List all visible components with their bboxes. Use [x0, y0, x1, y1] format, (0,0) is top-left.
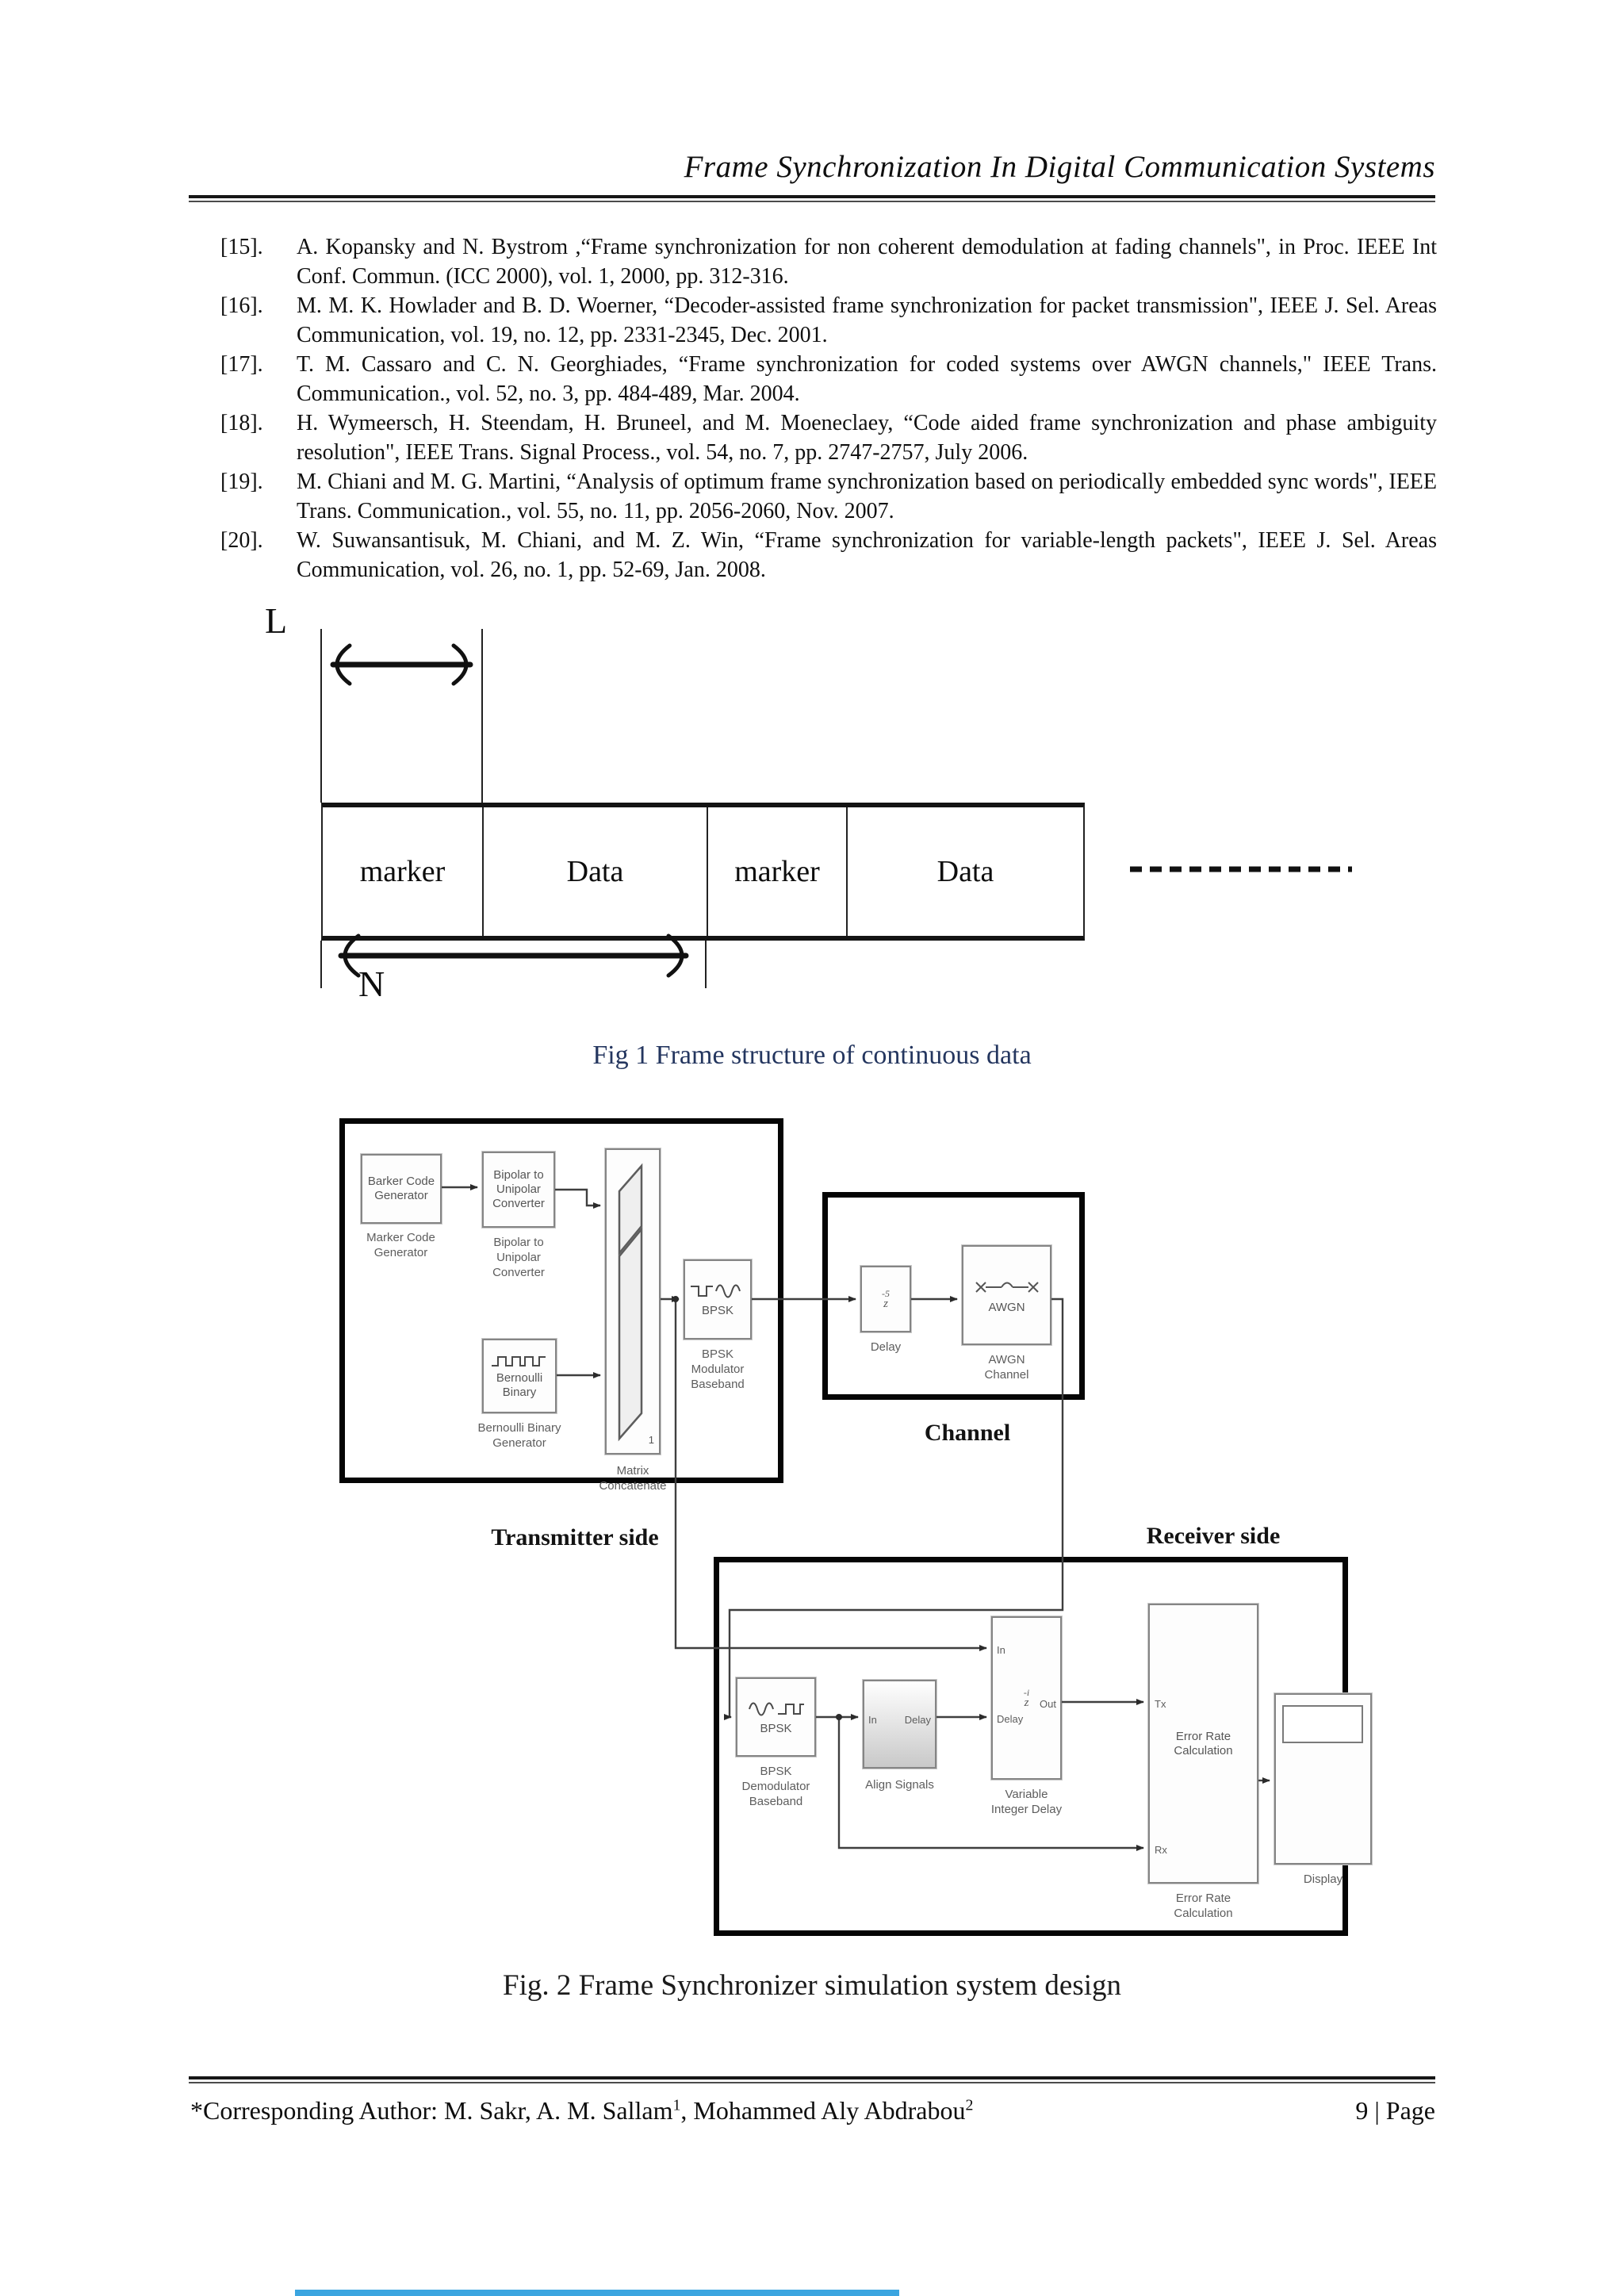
fig1-length-N-label: N: [358, 963, 385, 1005]
fig1-L-arrow: [333, 646, 470, 684]
align-signals-block: In Delay: [863, 1680, 936, 1769]
awgn-channel-label: AWGN Channel: [969, 1353, 1044, 1383]
fig1-length-L-label: L: [265, 600, 287, 642]
bpsk-modulator-text: BPSK: [702, 1304, 733, 1318]
fig1-cell-data: Data: [846, 807, 1083, 936]
sine-square-waveform-icon: [746, 1699, 806, 1719]
fig1-cell-marker: marker: [323, 807, 482, 936]
variable-delay-in-port: In: [997, 1645, 1005, 1655]
delay-base: z: [883, 1298, 888, 1310]
align-signals-label: Align Signals: [850, 1778, 949, 1793]
square-sine-waveform-icon: [688, 1281, 748, 1301]
header-rule-thick: [189, 195, 1435, 198]
page-number: 9 | Page: [1213, 2096, 1435, 2125]
variable-delay-base: z: [1025, 1697, 1029, 1709]
fig1-cell-data: Data: [482, 807, 707, 936]
reference-text: A. Kopansky and N. Bystrom ,“Frame synch…: [297, 232, 1437, 291]
reference-item: [15]. A. Kopansky and N. Bystrom ,“Frame…: [220, 232, 1437, 291]
fig1-cell-marker: marker: [707, 807, 846, 936]
barker-code-generator-block: Barker Code Generator: [361, 1154, 442, 1224]
reference-number: [18].: [220, 408, 297, 467]
reference-text: M. M. K. Howlader and B. D. Woerner, “De…: [297, 291, 1437, 350]
author-superscript-2: 2: [965, 2096, 973, 2114]
awgn-channel-icon: [971, 1276, 1043, 1298]
reference-item: [19]. M. Chiani and M. G. Martini, “Anal…: [220, 467, 1437, 526]
channel-section-label: Channel: [904, 1420, 1031, 1447]
receiver-side-label: Receiver side: [1102, 1523, 1324, 1550]
barker-code-generator-label: Marker Code Generator: [339, 1231, 462, 1261]
error-rate-calculation-text: Error Rate Calculation: [1174, 1730, 1232, 1758]
header-rule-thin: [189, 201, 1435, 202]
matrix-concatenate-block: 1: [605, 1148, 661, 1455]
bpsk-demodulator-label: BPSK Demodulator Baseband: [734, 1765, 818, 1809]
delay-label: Delay: [854, 1340, 917, 1355]
bernoulli-binary-block: Bernoulli Binary: [482, 1339, 557, 1413]
matrix-concatenate-label: Matrix Concatenate: [573, 1464, 693, 1494]
bipolar-to-unipolar-text: Bipolar to Unipolar Converter: [492, 1168, 545, 1211]
reference-text: W. Suwansantisuk, M. Chiani, and M. Z. W…: [297, 526, 1437, 585]
bpsk-modulator-label: BPSK Modulator Baseband: [680, 1347, 755, 1392]
error-rate-calculation-block: Tx Error Rate Calculation Rx: [1148, 1604, 1258, 1884]
fig1-caption: Fig 1 Frame structure of continuous data: [0, 1041, 1624, 1071]
z-variable-delay-icon: -i z: [1024, 1688, 1029, 1709]
error-rate-tx-port: Tx: [1155, 1699, 1166, 1709]
align-signals-delay-port: Delay: [905, 1715, 931, 1725]
z-delay-icon: -5 z: [882, 1289, 890, 1310]
fig1-frame-table: marker Data marker Data: [321, 803, 1085, 941]
matrix-concatenate-icon: [608, 1155, 657, 1448]
bpsk-demodulator-text: BPSK: [760, 1722, 791, 1736]
delay-block: -5 z: [860, 1266, 911, 1332]
display-label: Display: [1286, 1872, 1360, 1888]
corresponding-author-mid: , Mohammed Aly Abdrabou: [680, 2096, 965, 2125]
footer-rule-thin: [189, 2082, 1435, 2083]
bipolar-to-unipolar-block: Bipolar to Unipolar Converter: [482, 1152, 555, 1228]
transmitter-side-label: Transmitter side: [456, 1524, 694, 1551]
delay-exponent: -5: [882, 1289, 890, 1298]
display-block: [1274, 1693, 1372, 1865]
awgn-text: AWGN: [988, 1301, 1025, 1315]
reference-number: [17].: [220, 350, 297, 408]
reference-text: H. Wymeersch, H. Steendam, H. Bruneel, a…: [297, 408, 1437, 467]
reference-number: [16].: [220, 291, 297, 350]
bpsk-modulator-block: BPSK: [684, 1259, 752, 1340]
reference-number: [15].: [220, 232, 297, 291]
reference-item: [18]. H. Wymeersch, H. Steendam, H. Brun…: [220, 408, 1437, 467]
fig1-N-arrow: [341, 936, 686, 976]
awgn-block: AWGN: [962, 1245, 1051, 1345]
page-header-title: Frame Synchronization In Digital Communi…: [189, 149, 1435, 185]
footer-rule-thick: [189, 2076, 1435, 2079]
variable-delay-exponent: -i: [1024, 1688, 1029, 1697]
fig2-caption: Fig. 2 Frame Synchronizer simulation sys…: [0, 1968, 1624, 2003]
reference-text: M. Chiani and M. G. Martini, “Analysis o…: [297, 467, 1437, 526]
corresponding-author-line: *Corresponding Author: M. Sakr, A. M. Sa…: [190, 2096, 1189, 2125]
reference-text: T. M. Cassaro and C. N. Georghiades, “Fr…: [297, 350, 1437, 408]
bottom-blue-bar: [295, 2290, 899, 2296]
bernoulli-binary-text: Bernoulli Binary: [496, 1371, 542, 1400]
paper-page: { "header": { "title": "Frame Synchroniz…: [0, 0, 1624, 2296]
bernoulli-binary-label: Bernoulli Binary Generator: [446, 1421, 593, 1451]
reference-number: [20].: [220, 526, 297, 585]
bipolar-to-unipolar-label: Bipolar to Unipolar Converter: [458, 1236, 579, 1280]
barker-code-generator-text: Barker Code Generator: [368, 1175, 435, 1203]
variable-integer-delay-label: Variable Integer Delay: [975, 1788, 1078, 1818]
error-rate-rx-port: Rx: [1155, 1845, 1167, 1855]
author-superscript-1: 1: [672, 2096, 680, 2114]
align-signals-in-port: In: [868, 1715, 877, 1725]
references-list: [15]. A. Kopansky and N. Bystrom ,“Frame…: [220, 232, 1437, 585]
pulse-waveform-icon: [490, 1353, 549, 1369]
reference-number: [19].: [220, 467, 297, 526]
variable-delay-delay-port: Delay: [997, 1714, 1023, 1724]
reference-item: [17]. T. M. Cassaro and C. N. Georghiade…: [220, 350, 1437, 408]
variable-delay-out-port: Out: [1040, 1699, 1056, 1709]
error-rate-calculation-label: Error Rate Calculation: [1150, 1892, 1257, 1922]
matrix-port-number: 1: [649, 1434, 654, 1447]
variable-integer-delay-block: In -i z Out Delay: [991, 1616, 1062, 1780]
reference-item: [16]. M. M. K. Howlader and B. D. Woerne…: [220, 291, 1437, 350]
reference-item: [20]. W. Suwansantisuk, M. Chiani, and M…: [220, 526, 1437, 585]
bpsk-demodulator-block: BPSK: [736, 1677, 816, 1757]
corresponding-author-prefix: *Corresponding Author: M. Sakr, A. M. Sa…: [190, 2096, 672, 2125]
display-readout: [1282, 1705, 1363, 1743]
